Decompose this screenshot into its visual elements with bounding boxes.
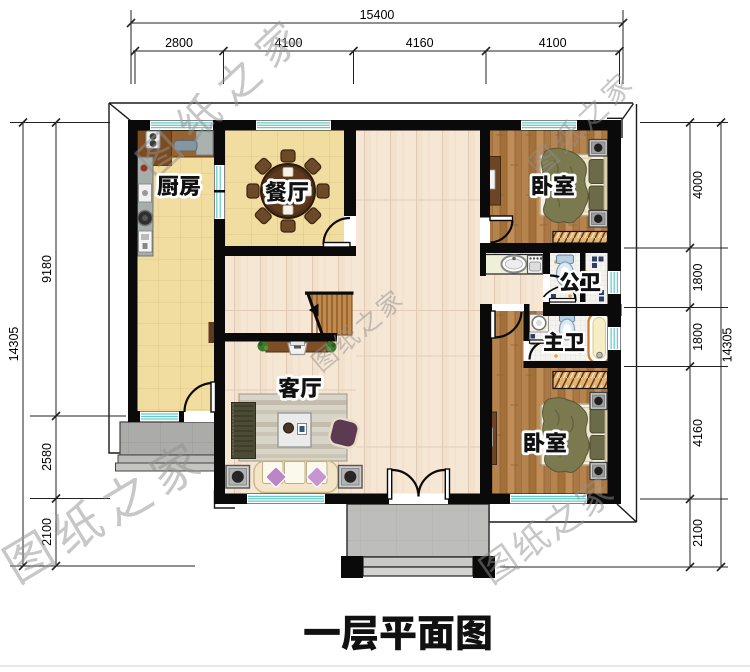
svg-text:4000: 4000: [691, 171, 705, 199]
svg-text:4160: 4160: [406, 36, 434, 50]
svg-text:14305: 14305: [7, 327, 21, 362]
svg-text:1800: 1800: [691, 264, 705, 292]
svg-text:2100: 2100: [691, 519, 705, 547]
svg-text:9180: 9180: [40, 255, 54, 283]
svg-text:2800: 2800: [165, 36, 193, 50]
svg-text:2580: 2580: [40, 443, 54, 471]
svg-text:4160: 4160: [691, 419, 705, 447]
svg-text:14305: 14305: [721, 328, 735, 363]
svg-text:15400: 15400: [360, 8, 395, 22]
svg-text:4100: 4100: [539, 36, 567, 50]
svg-text:1800: 1800: [691, 323, 705, 351]
